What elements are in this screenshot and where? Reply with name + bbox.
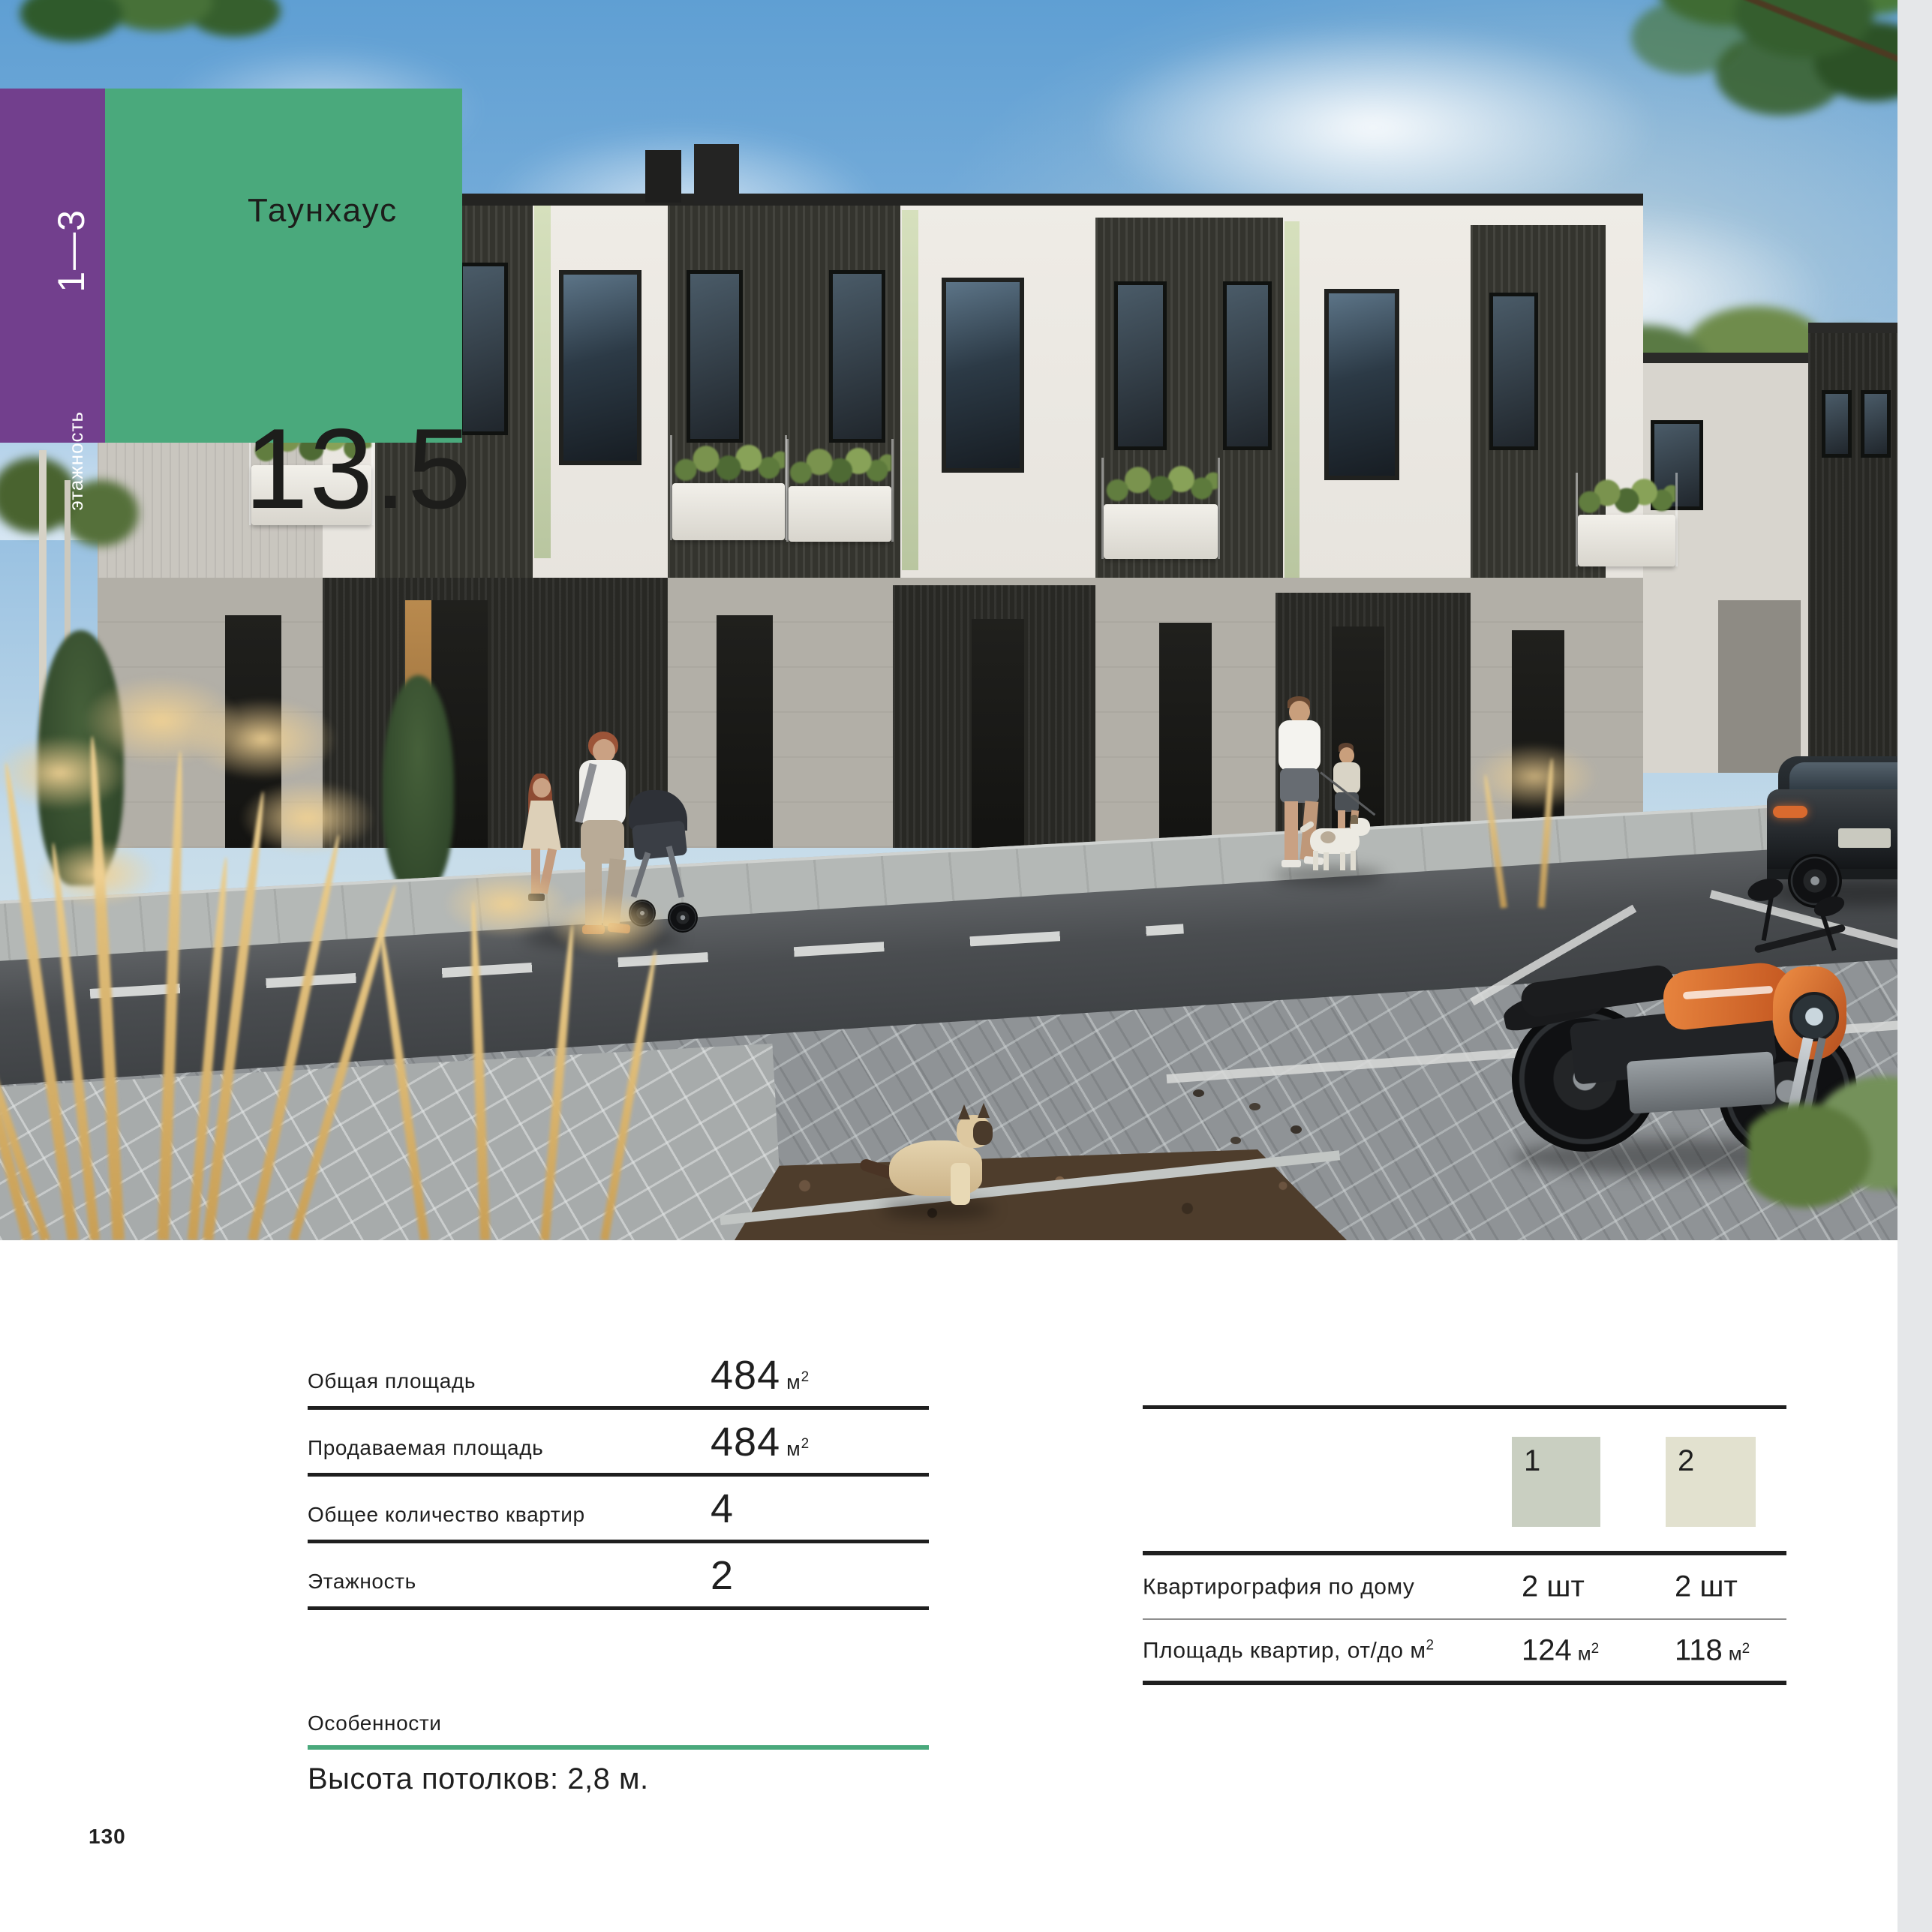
spec-row-floors: Этажность 2 — [308, 1543, 929, 1610]
grass-plume — [548, 893, 668, 957]
page-side-strip — [1897, 0, 1932, 1932]
building-type-band: Таунхаус 13.5 — [105, 89, 462, 443]
apartment-type-2-swatch: 2 — [1666, 1437, 1756, 1527]
row-value-type-2: 2 шт — [1675, 1570, 1744, 1604]
spec-row-total-area: Общая площадь 484м2 — [308, 1343, 929, 1410]
row-label: Квартирография по дому — [1143, 1574, 1414, 1600]
window — [687, 270, 743, 443]
conifer — [383, 675, 454, 893]
spec-value: 484м2 — [711, 1419, 810, 1465]
features-underline — [308, 1745, 929, 1750]
window — [1223, 281, 1272, 450]
spec-label: Общая площадь — [308, 1369, 476, 1393]
roof-parapet — [323, 194, 1643, 206]
apartment-type-swatches: 1 2 — [1143, 1409, 1786, 1551]
floors-axis-label: этажность — [65, 411, 88, 510]
spec-row-sellable-area: Продаваемая площадь 484м2 — [308, 1410, 929, 1477]
chimney — [694, 144, 739, 204]
spec-row-apartment-count: Общее количество квартир 4 — [308, 1477, 929, 1543]
features-section: Особенности Высота потолков: 2,8 м. — [308, 1711, 929, 1796]
balcony — [670, 435, 787, 540]
window — [1114, 281, 1167, 450]
brochure-page: 1—3 этажность Таунхаус 13.5 Общая площад… — [0, 0, 1932, 1932]
row-value-type-1: 2 шт — [1522, 1570, 1591, 1604]
page-number: 130 — [89, 1825, 126, 1849]
grass-plume — [240, 780, 375, 855]
facade-fin — [1284, 221, 1300, 581]
apartments-table: 1 2 Квартирография по дому 2 шт 2 шт Пло… — [1143, 1405, 1786, 1685]
pedestrians-man-child-dog — [1266, 696, 1402, 884]
apartment-type-1-swatch: 1 — [1512, 1437, 1600, 1527]
apartments-row-count: Квартирография по дому 2 шт 2 шт — [1143, 1555, 1786, 1620]
chimney — [645, 150, 681, 203]
row-value-type-1: 124м2 — [1522, 1633, 1599, 1667]
floors-band: 1—3 этажность — [0, 89, 105, 443]
spec-value: 484м2 — [711, 1352, 810, 1399]
features-title: Особенности — [308, 1711, 929, 1735]
tree-foliage — [0, 0, 285, 90]
facade-fin — [902, 210, 918, 570]
building-number: 13.5 — [245, 404, 473, 535]
balcony — [1101, 458, 1220, 559]
grass-plume — [188, 698, 338, 780]
property-type-label: Таунхаус — [248, 192, 398, 230]
features-text: Высота потолков: 2,8 м. — [308, 1762, 929, 1796]
spec-label: Общее количество квартир — [308, 1503, 585, 1527]
row-value-type-2: 118м2 — [1675, 1633, 1750, 1667]
spec-value: 4 — [711, 1486, 740, 1532]
far-slat-building — [1808, 323, 1897, 773]
window — [829, 270, 885, 443]
row-label: Площадь квартир, от/до м2 — [1143, 1637, 1435, 1663]
apartments-row-area: Площадь квартир, от/до м2 124м2 118м2 — [1143, 1620, 1786, 1685]
window — [559, 270, 641, 465]
cat — [859, 1103, 1017, 1230]
balcony — [1576, 473, 1678, 566]
bush — [1748, 1020, 1897, 1240]
birds — [1185, 1080, 1336, 1155]
window — [1324, 289, 1399, 480]
balcony — [786, 439, 894, 542]
window — [942, 278, 1024, 473]
grass-plume — [38, 840, 158, 908]
spec-label: Продаваемая площадь — [308, 1436, 543, 1460]
spec-label: Этажность — [308, 1570, 416, 1594]
facade-fin — [534, 206, 551, 558]
specs-table: Общая площадь 484м2 Продаваемая площадь … — [308, 1343, 929, 1610]
spec-value: 2 — [711, 1552, 740, 1599]
floors-range: 1—3 — [50, 209, 93, 293]
window — [1489, 293, 1538, 450]
